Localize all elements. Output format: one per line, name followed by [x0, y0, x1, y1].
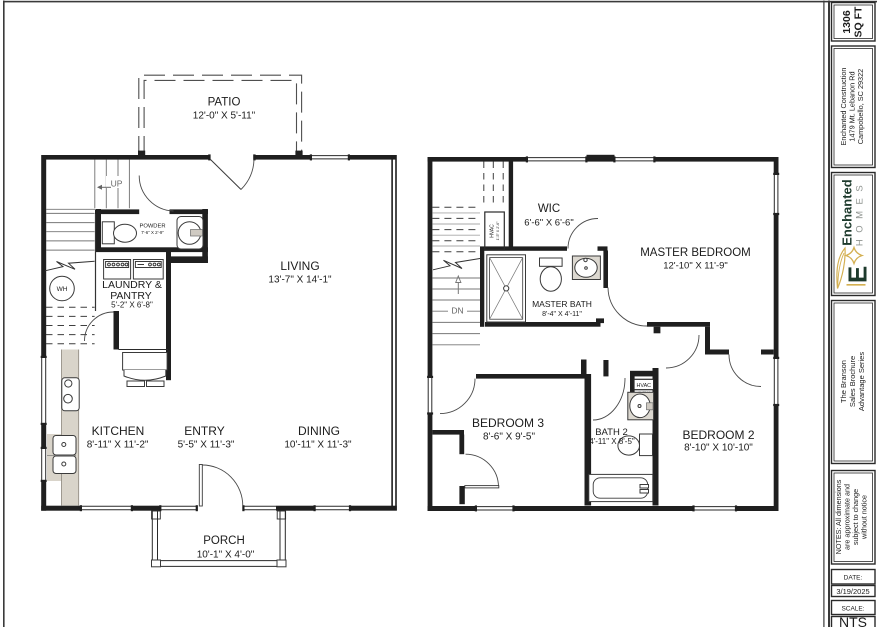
svg-text:WIC: WIC [538, 203, 560, 215]
svg-text:1'-5" X 2'-6": 1'-5" X 2'-6" [496, 221, 500, 240]
svg-text:SQ FT: SQ FT [853, 6, 865, 38]
svg-text:MASTER BEDROOM: MASTER BEDROOM [640, 247, 751, 259]
svg-text:8'-10" X 10'-10": 8'-10" X 10'-10" [684, 443, 753, 454]
svg-text:13'-7" X 14'-1": 13'-7" X 14'-1" [268, 275, 332, 286]
svg-text:PORCH: PORCH [203, 535, 245, 547]
svg-text:POWDER: POWDER [139, 223, 165, 229]
svg-text:PATIO: PATIO [208, 97, 241, 109]
svg-text:BEDROOM 3: BEDROOM 3 [472, 416, 544, 430]
svg-text:UP: UP [111, 179, 123, 189]
svg-text:4'-11" X 8'-5": 4'-11" X 8'-5" [589, 437, 635, 446]
svg-text:8'-11" X 11'-2": 8'-11" X 11'-2" [87, 440, 149, 451]
svg-text:ENTRY: ENTRY [184, 424, 224, 438]
svg-text:DATE:: DATE: [844, 575, 863, 582]
svg-text:LIVING: LIVING [280, 259, 319, 273]
svg-text:DN: DN [451, 306, 463, 316]
svg-text:5'-2" X 6'-8": 5'-2" X 6'-8" [111, 301, 153, 310]
svg-text:E: E [843, 266, 873, 283]
svg-text:DINING: DINING [298, 424, 340, 438]
svg-text:3/19/2025: 3/19/2025 [836, 587, 869, 596]
svg-text:MASTER BATH: MASTER BATH [532, 299, 592, 309]
svg-text:10'-11" X 11'-3": 10'-11" X 11'-3" [284, 440, 352, 451]
svg-text:12'-0" X 5'-11": 12'-0" X 5'-11" [193, 111, 256, 122]
svg-text:HVAC: HVAC [637, 383, 652, 389]
svg-text:WH: WH [57, 286, 68, 293]
svg-text:7'-6" X 2'-9": 7'-6" X 2'-9" [141, 230, 164, 235]
svg-text:6'-6" X 6'-6": 6'-6" X 6'-6" [524, 218, 573, 229]
svg-text:8'-6" X 9'-5": 8'-6" X 9'-5" [483, 432, 536, 443]
svg-text:8'-4" X 4'-11": 8'-4" X 4'-11" [542, 311, 582, 318]
svg-text:Advantage Series: Advantage Series [857, 352, 866, 411]
svg-text:1306: 1306 [841, 10, 853, 34]
svg-text:The Branson: The Branson [839, 360, 848, 403]
svg-text:5'-5" X 11'-3": 5'-5" X 11'-3" [178, 440, 235, 451]
svg-text:12'-10" X 11'-9": 12'-10" X 11'-9" [663, 261, 728, 272]
svg-text:Campobello, SC 29322: Campobello, SC 29322 [856, 69, 865, 144]
svg-text:HOMES: HOMES [855, 179, 866, 246]
svg-text:NTS: NTS [839, 614, 867, 627]
svg-text:HVAC: HVAC [490, 224, 496, 238]
svg-text:Sales Brochure: Sales Brochure [848, 356, 857, 407]
svg-text:SCALE:: SCALE: [841, 606, 864, 613]
svg-text:10'-1" X 4'-0": 10'-1" X 4'-0" [197, 550, 255, 561]
svg-text:KITCHEN: KITCHEN [92, 424, 145, 438]
svg-text:without notice: without notice [860, 495, 869, 540]
svg-text:BEDROOM 2: BEDROOM 2 [682, 428, 754, 442]
svg-text:Enchanted: Enchanted [840, 179, 855, 246]
